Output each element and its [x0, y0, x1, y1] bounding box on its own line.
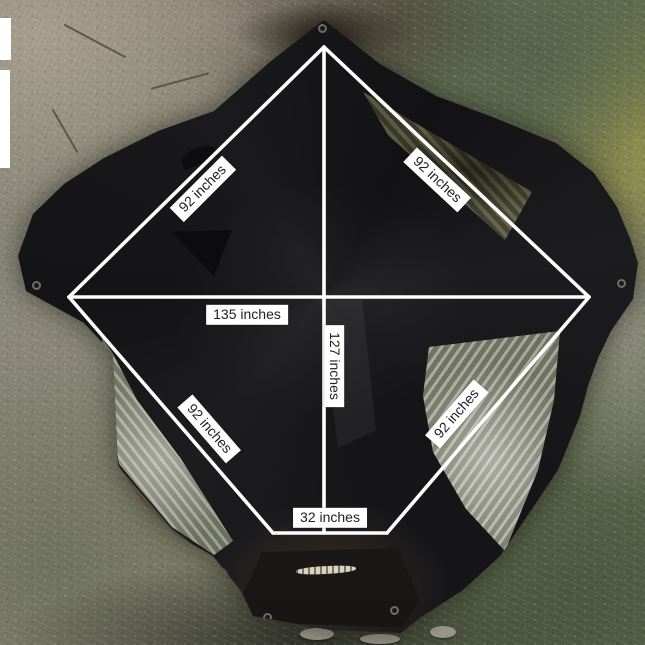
measurement-lines — [0, 0, 645, 645]
left-edge-white-artifact — [0, 70, 10, 168]
left-edge-white-artifact — [0, 18, 11, 60]
line-lower-left-edge — [69, 297, 273, 533]
line-upper-left-edge — [69, 47, 324, 297]
label-bottom-width: 32 inches — [293, 508, 367, 528]
tent-measurement-photo: 92 inches 92 inches 135 inches 127 inche… — [0, 0, 645, 645]
label-vertical-depth: 127 inches — [324, 325, 344, 407]
line-lower-right-edge — [387, 297, 589, 533]
label-horizontal-width: 135 inches — [206, 305, 288, 325]
line-upper-right-edge — [324, 47, 589, 297]
